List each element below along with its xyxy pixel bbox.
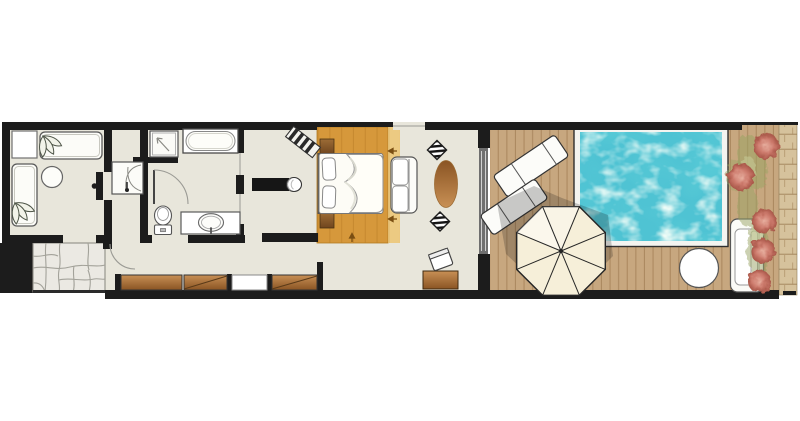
path-edge (33, 290, 105, 293)
nightstand (320, 139, 334, 154)
armchair (12, 131, 37, 158)
double-bed (319, 154, 383, 214)
entry-block (0, 243, 33, 293)
stone-wall (779, 124, 797, 295)
writing-desk (423, 271, 458, 289)
sofa (391, 157, 417, 213)
washbasin-vanity (181, 212, 240, 234)
stone-path (33, 243, 105, 292)
closet-panels (121, 275, 317, 290)
oval-coffee-table (435, 161, 458, 208)
tv-console (252, 178, 302, 192)
bathtub (183, 129, 238, 153)
nightstand (320, 213, 334, 228)
window-behind-sofa (393, 122, 425, 130)
round-side-table (680, 249, 719, 288)
pillow (322, 186, 336, 208)
floor-plan (0, 0, 800, 421)
shower (150, 131, 178, 157)
pillow (322, 158, 336, 181)
toilet (155, 206, 172, 235)
sliding-glass-door (479, 148, 488, 254)
parasol (517, 207, 606, 296)
floor-plan-canvas (0, 0, 800, 421)
closet-panel-white (232, 275, 267, 290)
round-side-table (42, 167, 63, 188)
wardrobe (112, 162, 143, 194)
mask-below-entry (0, 293, 108, 421)
closet-panel (121, 275, 182, 290)
stone-wall-base (783, 291, 796, 295)
